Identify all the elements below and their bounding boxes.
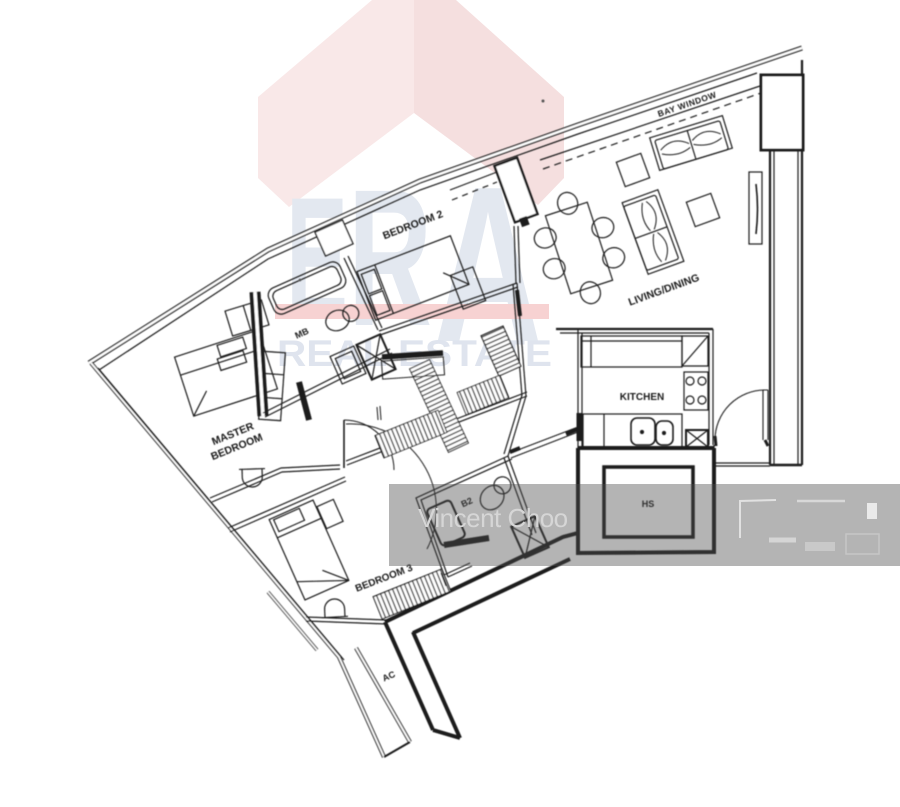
svg-text:KITCHEN: KITCHEN [620,392,664,403]
svg-text:E: E [286,162,348,354]
svg-text:Vincent Choo: Vincent Choo [418,503,568,533]
